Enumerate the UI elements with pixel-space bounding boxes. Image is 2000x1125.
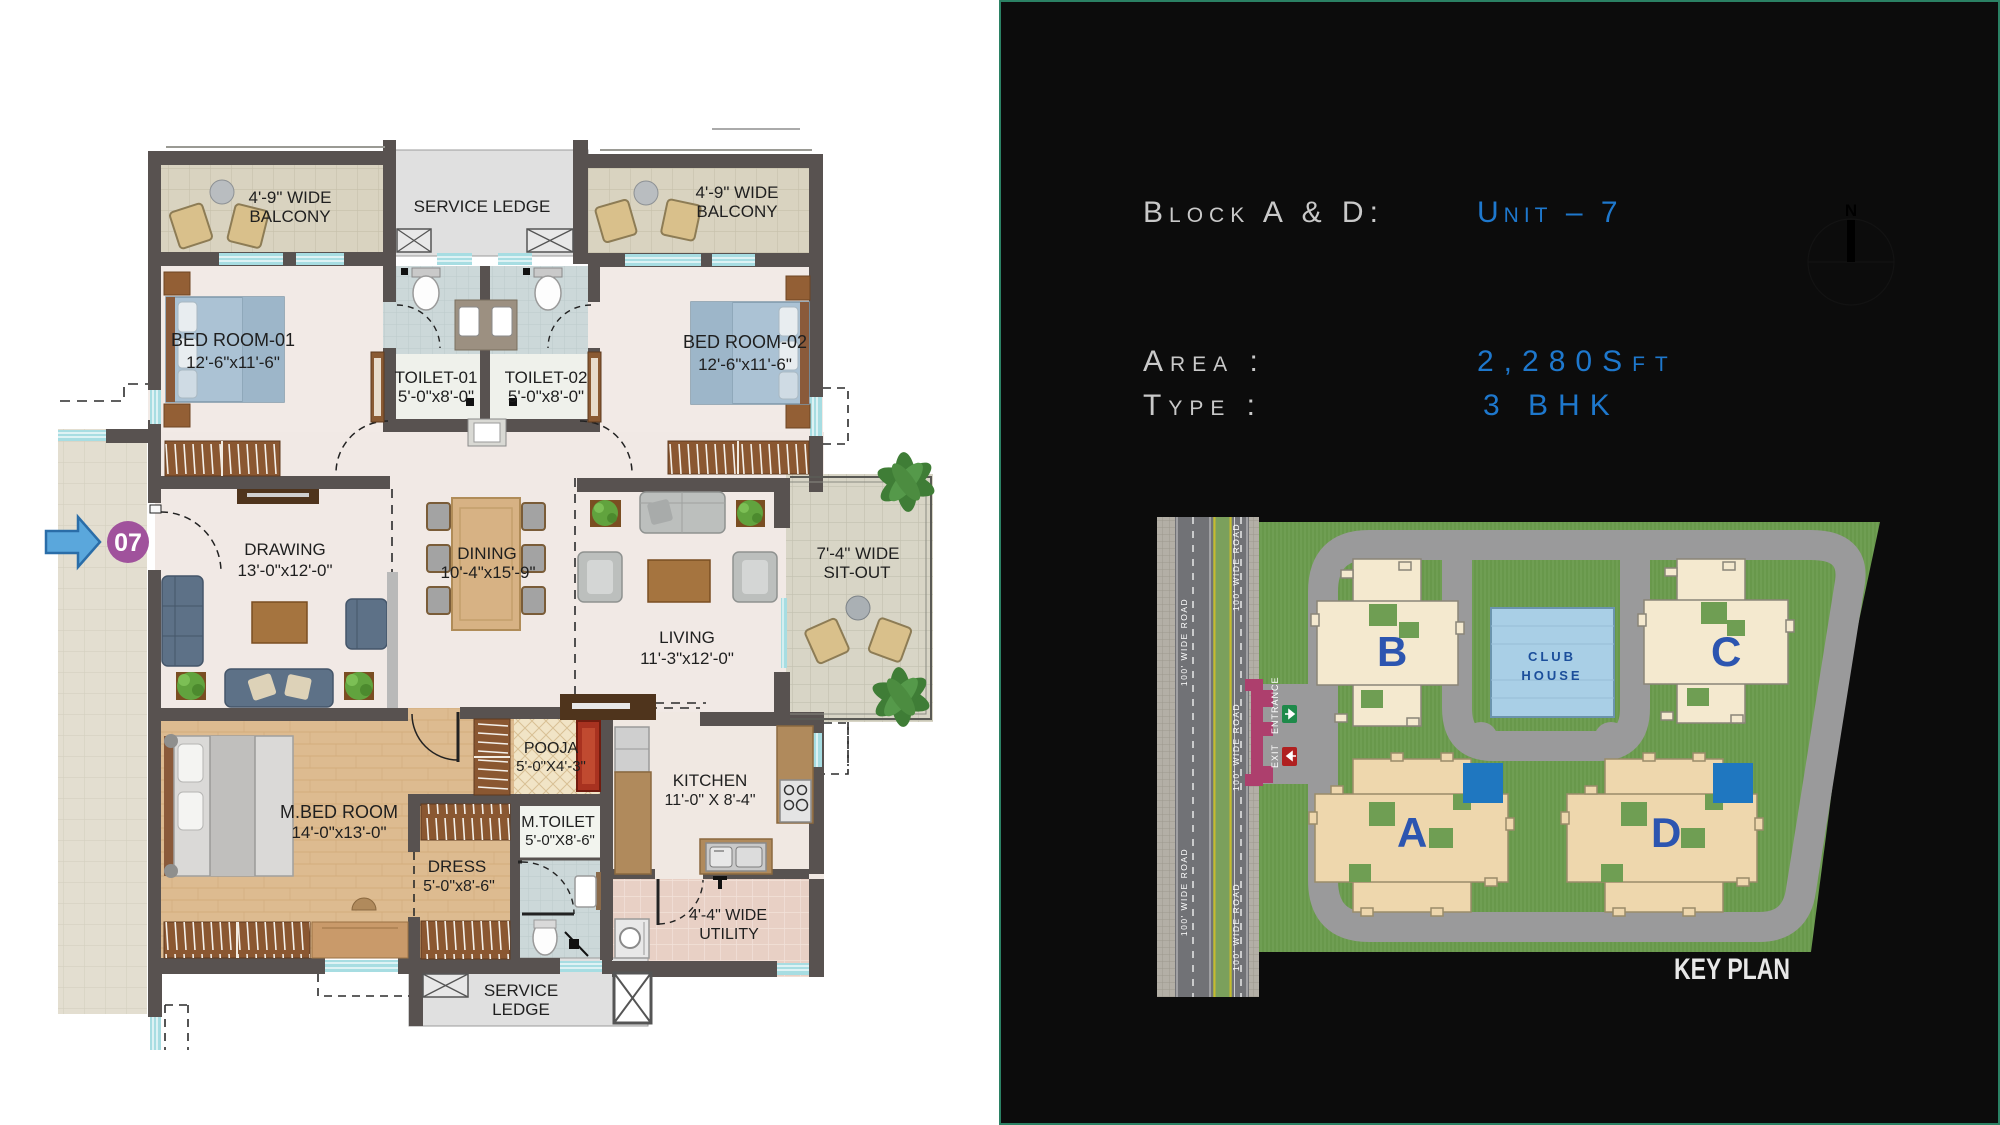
svg-text:4'-9" WIDE: 4'-9" WIDE (696, 183, 779, 202)
svg-text:BED ROOM-01: BED ROOM-01 (171, 330, 295, 350)
svg-text:ENTRANCE: ENTRANCE (1270, 676, 1280, 734)
svg-text:100' WIDE ROAD: 100' WIDE ROAD (1231, 883, 1241, 971)
svg-text:5'-0"x8'-6": 5'-0"x8'-6" (423, 878, 495, 895)
svg-text:C: C (1711, 628, 1741, 675)
svg-text:14'-0"x13'-0": 14'-0"x13'-0" (291, 823, 386, 842)
svg-text:DRAWING: DRAWING (244, 540, 326, 559)
svg-text:12'-6"x11'-6": 12'-6"x11'-6" (698, 355, 792, 374)
svg-text:TOILET-01: TOILET-01 (395, 368, 478, 387)
svg-text:100' WIDE ROAD: 100' WIDE ROAD (1231, 523, 1241, 611)
svg-text:DRESS: DRESS (428, 857, 487, 876)
svg-text:TOILET-02: TOILET-02 (505, 368, 588, 387)
svg-text:10'-4"x15'-9": 10'-4"x15'-9" (440, 563, 535, 582)
svg-text:07: 07 (114, 529, 142, 557)
svg-text:4'-9" WIDE: 4'-9" WIDE (249, 188, 332, 207)
svg-text:B: B (1377, 628, 1407, 675)
svg-text:5'-0"X8'-6": 5'-0"X8'-6" (525, 832, 595, 849)
svg-text:100' WIDE ROAD: 100' WIDE ROAD (1179, 598, 1189, 686)
svg-text:13'-0"x12'-0": 13'-0"x12'-0" (237, 561, 332, 580)
svg-text:11'-0" X 8'-4": 11'-0" X 8'-4" (665, 792, 756, 809)
svg-text:BALCONY: BALCONY (696, 202, 777, 221)
svg-text:SERVICE: SERVICE (484, 981, 558, 1000)
svg-text:4'-4" WIDE: 4'-4" WIDE (689, 907, 767, 924)
svg-text:A: A (1397, 809, 1427, 856)
svg-text:5'-0"X4'-3": 5'-0"X4'-3" (516, 758, 586, 775)
svg-text:UTILITY: UTILITY (699, 926, 759, 943)
svg-text:KITCHEN: KITCHEN (673, 771, 748, 790)
svg-text:BED ROOM-02: BED ROOM-02 (683, 332, 807, 352)
svg-text:BALCONY: BALCONY (249, 207, 330, 226)
svg-text:LEDGE: LEDGE (492, 1000, 550, 1019)
svg-text:100' WIDE ROAD: 100' WIDE ROAD (1179, 848, 1189, 936)
svg-text:M.BED ROOM: M.BED ROOM (280, 802, 398, 822)
svg-text:SERVICE LEDGE: SERVICE LEDGE (414, 197, 551, 216)
svg-text:N: N (1845, 201, 1857, 220)
svg-text:EXIT: EXIT (1270, 744, 1280, 768)
svg-text:POOJA: POOJA (524, 740, 579, 757)
svg-text:CLUB: CLUB (1528, 649, 1576, 664)
svg-text:100' WIDE ROAD: 100' WIDE ROAD (1231, 703, 1241, 791)
svg-text:HOUSE: HOUSE (1521, 668, 1582, 683)
svg-text:DINING: DINING (457, 544, 517, 563)
svg-text:7'-4" WIDE: 7'-4" WIDE (817, 544, 900, 563)
svg-text:5'-0"x8'-0": 5'-0"x8'-0" (508, 387, 584, 406)
svg-text:11'-3"x12'-0": 11'-3"x12'-0" (640, 649, 734, 668)
svg-text:5'-0"x8'-0": 5'-0"x8'-0" (398, 387, 474, 406)
svg-text:D: D (1651, 809, 1681, 856)
svg-text:KEY PLAN: KEY PLAN (1674, 953, 1790, 986)
svg-text:12'-6"x11'-6": 12'-6"x11'-6" (186, 353, 280, 372)
svg-text:LIVING: LIVING (659, 628, 715, 647)
svg-text:SIT-OUT: SIT-OUT (823, 563, 890, 582)
svg-text:M.TOILET: M.TOILET (521, 814, 595, 831)
